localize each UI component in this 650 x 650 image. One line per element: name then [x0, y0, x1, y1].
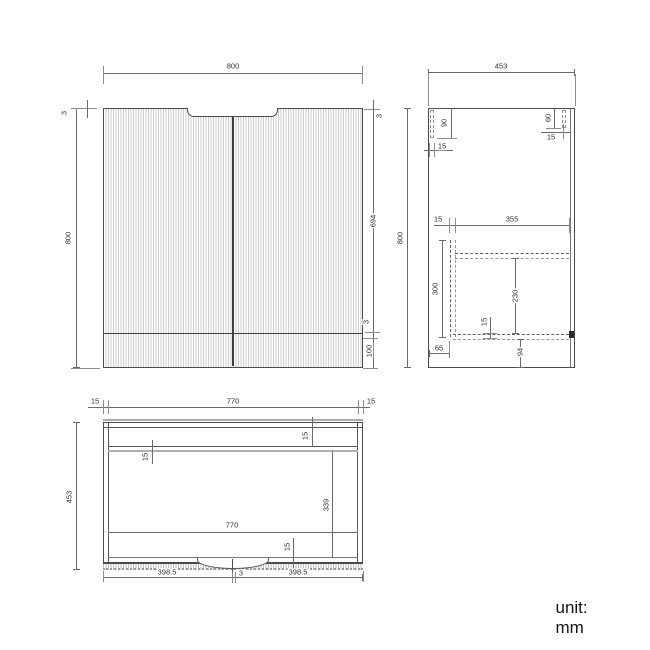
ext-line: [363, 571, 364, 582]
ext-line: [483, 338, 497, 339]
ext-line: [363, 338, 378, 339]
dim-side-front-rail: 60: [544, 113, 552, 123]
plan-inner-width-dim: [108, 532, 358, 533]
dim-side-back-rail: 90: [440, 118, 448, 128]
dim-plan-door-panel: 15: [283, 542, 291, 552]
ext-line: [449, 341, 450, 358]
ext-line: [362, 66, 363, 84]
dim-front-width: 800: [226, 62, 241, 70]
plan-bottom-dim-line: [103, 577, 363, 578]
side-door-inner-line: [570, 109, 571, 367]
dim-side-back-panel: 15: [437, 142, 447, 150]
ext-line: [232, 572, 233, 583]
side-back-rail-hidden: [430, 110, 434, 138]
ext-line: [365, 332, 380, 333]
dim-side-drawer-depth: 355: [505, 215, 520, 223]
plan-rail-line: [108, 446, 358, 447]
front-door-gap-line: [232, 116, 234, 366]
dim-side-drawer-back: 15: [433, 215, 443, 223]
dim-side-depth: 453: [494, 62, 509, 70]
plan-side-panel-right-line: [357, 423, 358, 562]
dim-plan-panel-right: 15: [366, 397, 376, 405]
plan-rail-dim: [152, 440, 153, 464]
ext-line: [455, 218, 456, 233]
dim-front-height: 800: [64, 231, 72, 246]
side-bottom-hidden-2: [453, 339, 569, 340]
ext-line: [429, 143, 430, 157]
ext-line: [575, 74, 576, 106]
ext-line: [363, 400, 364, 414]
plan-top-edge-line: [103, 419, 363, 421]
ext-line: [108, 400, 109, 414]
dim-plan-inner-width-2: 770: [225, 521, 240, 529]
front-view: [103, 108, 363, 368]
side-depth-dim-line: [428, 72, 575, 73]
dim-side-bottom-panel: 15: [480, 317, 488, 327]
dim-plan-inner-width: 770: [226, 397, 241, 405]
front-right-dim-line: [373, 100, 374, 368]
ext-line: [103, 66, 104, 84]
side-view: [428, 108, 575, 368]
front-width-dim-line: [103, 73, 363, 74]
ext-line: [437, 138, 457, 139]
dim-plan-center-gap: 3: [238, 569, 244, 577]
dim-side-back-offset: 65: [434, 344, 444, 352]
dim-plan-door-left: 398.5: [157, 568, 178, 576]
dim-plan-panel-left: 15: [90, 397, 100, 405]
side-drawer-back-hidden: [450, 240, 451, 337]
side-drawer-back-hidden-2: [455, 240, 456, 337]
side-runner-block: [569, 331, 574, 338]
side-back-offset-dim: [429, 353, 450, 354]
dim-plan-door-right: 398.5: [288, 568, 309, 576]
front-drawer-line: [104, 333, 362, 335]
side-bottom-hidden: [453, 334, 569, 335]
ext-line: [363, 368, 378, 369]
plan-view: [103, 422, 363, 563]
plan-inner-depth-dim: [332, 451, 333, 558]
dim-side-height: 800: [396, 231, 404, 246]
ext-line: [71, 368, 100, 369]
ext-line: [103, 400, 104, 414]
dim-plan-back-panel: 15: [301, 431, 309, 441]
side-height-dim-line: [407, 108, 408, 368]
side-back-rail-dim: [451, 109, 452, 139]
dim-front-gap: 3: [362, 319, 370, 325]
ext-line: [483, 333, 497, 334]
front-handle-notch: [187, 108, 278, 117]
plan-back-panel-dim: [312, 417, 313, 448]
plan-door-gap-mark: [232, 559, 234, 572]
ext-line: [358, 400, 359, 414]
ext-line: [546, 128, 561, 129]
dim-plan-depth: 453: [65, 490, 73, 505]
unit-label: unit: mm: [556, 598, 619, 638]
front-height-dim-line: [76, 108, 77, 368]
technical-drawing: 800 800 3 3 694 3 100 453 800 90 15 60: [0, 0, 650, 650]
ext-line: [103, 571, 104, 582]
side-front-rail-dim: [554, 109, 555, 129]
ext-line: [428, 74, 429, 106]
dim-front-reveal-right: 3: [375, 113, 383, 119]
plan-depth-dim-line: [76, 422, 77, 570]
dim-side-drawer-height: 300: [431, 282, 439, 297]
side-bottom-panel-dim: [490, 317, 491, 339]
side-shelf-hidden: [455, 253, 569, 254]
dim-front-reveal-left: 3: [60, 110, 68, 116]
front-reveal-left-dim: [87, 100, 88, 118]
dim-plan-inner-depth: 339: [322, 498, 330, 513]
ext-line: [434, 143, 435, 157]
plan-door-panel-dim: [293, 538, 294, 569]
side-drawer-height-dim: [442, 240, 443, 338]
ext-line: [71, 108, 97, 109]
plan-top-dim-line: [88, 407, 370, 408]
dim-plan-rail: 15: [141, 452, 149, 462]
dim-front-door-height: 694: [369, 214, 377, 229]
dim-side-bottom-clear: 94: [516, 347, 524, 357]
dim-side-shelf-clear: 230: [511, 289, 519, 304]
plan-side-panel-left-line: [108, 423, 109, 562]
ext-line: [235, 572, 236, 583]
dim-front-drawer-front: 100: [365, 344, 373, 359]
dim-side-front-panel: 15: [546, 133, 556, 141]
ext-line: [449, 218, 450, 233]
ext-line: [569, 218, 570, 233]
ext-line: [563, 124, 564, 139]
plan-back-panel-line: [104, 427, 362, 428]
